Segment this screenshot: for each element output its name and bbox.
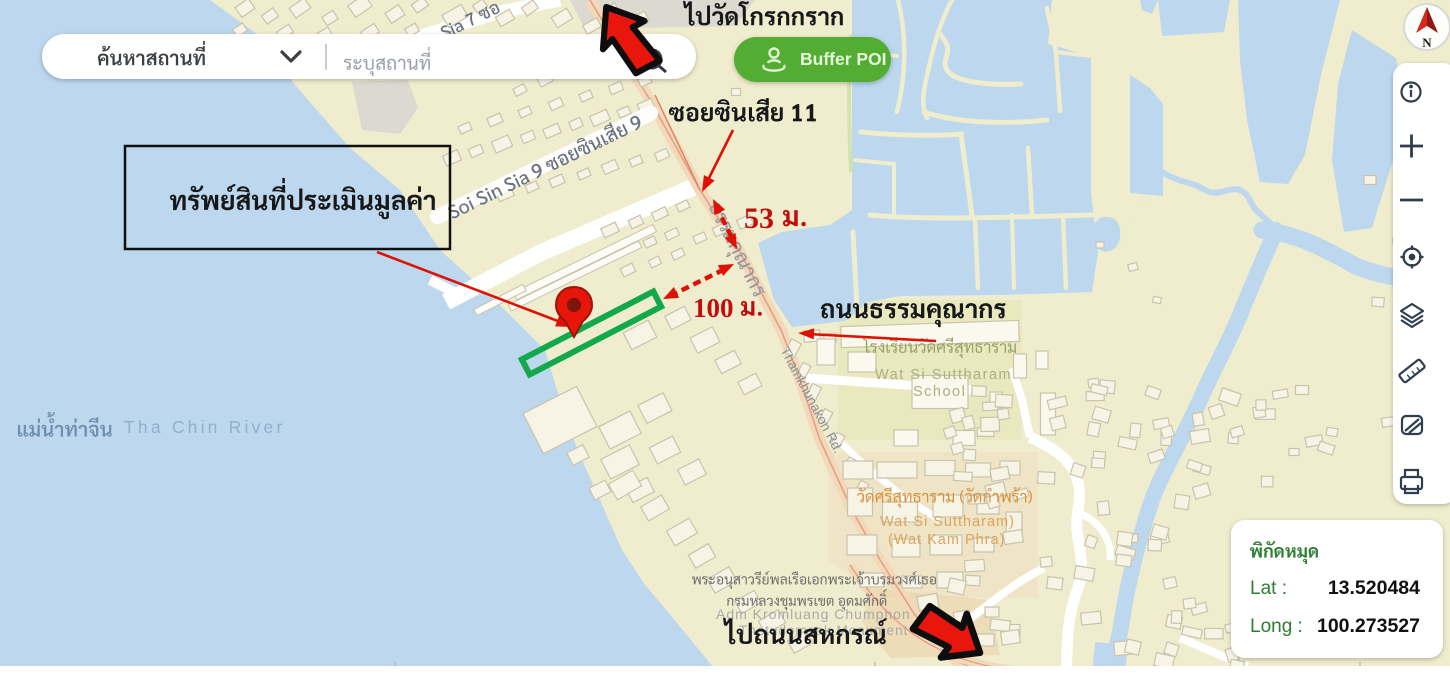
- svg-text:N: N: [1422, 35, 1432, 50]
- svg-text:100.273527: 100.273527: [1317, 615, 1420, 637]
- svg-text:Wat Si Suttharam: Wat Si Suttharam: [875, 367, 1012, 383]
- svg-text:Wat Si Suttharam): Wat Si Suttharam): [880, 514, 1015, 530]
- svg-text:Long :: Long :: [1250, 616, 1303, 637]
- svg-text:13.520484: 13.520484: [1328, 577, 1420, 599]
- svg-text:School: School: [913, 384, 966, 400]
- svg-text:(Wat Kam Phra): (Wat Kam Phra): [888, 532, 1005, 548]
- svg-text:53: 53: [744, 202, 774, 235]
- svg-text:100: 100: [693, 293, 734, 323]
- svg-text:Lat :: Lat :: [1250, 578, 1287, 599]
- svg-text:Tha Chin River: Tha Chin River: [124, 417, 286, 437]
- svg-text:Adm Kromluang Chumphon: Adm Kromluang Chumphon: [716, 606, 911, 622]
- svg-text:Buffer POI: Buffer POI: [800, 49, 887, 69]
